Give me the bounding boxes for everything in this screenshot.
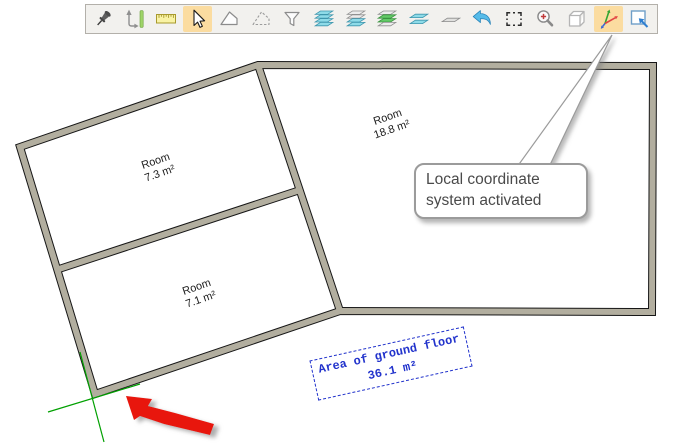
undo-icon <box>470 7 494 31</box>
callout-bubble: Local coordinate system activated <box>414 163 588 219</box>
toolbar-button-layers-stack[interactable] <box>309 6 338 32</box>
select-area-icon <box>502 7 526 31</box>
local-coordinate-system-icon <box>597 7 621 31</box>
toolbar-button-zoom-in[interactable] <box>531 6 560 32</box>
main-toolbar <box>85 4 658 34</box>
callout-tail <box>517 35 612 167</box>
measure-edge-icon <box>122 7 146 31</box>
toolbar-button-ruler[interactable] <box>151 6 180 32</box>
toolbar-button-layer-single[interactable] <box>436 6 465 32</box>
app-window: Room 7.3 m² Room 18.8 m² Room 7.1 m² Are… <box>0 0 678 444</box>
layers-upper-icon <box>344 7 368 31</box>
new-view-icon <box>628 7 652 31</box>
toolbar-button-select-cursor[interactable] <box>183 6 212 32</box>
polygon-icon <box>217 7 241 31</box>
toolbar-button-undo[interactable] <box>468 6 497 32</box>
toolbar-button-measure-edge[interactable] <box>120 6 149 32</box>
toolbar-button-polygon-auxiliary[interactable] <box>246 6 275 32</box>
toolbar-button-layers-thin-pair[interactable] <box>404 6 433 32</box>
toolbar-button-new-view[interactable] <box>626 6 655 32</box>
filter-icon <box>280 7 304 31</box>
zoom-in-icon <box>533 7 557 31</box>
pin-icon <box>91 7 115 31</box>
ruler-icon <box>154 7 178 31</box>
layer-single-icon <box>439 7 463 31</box>
layers-green-icon <box>375 7 399 31</box>
layers-stack-icon <box>312 7 336 31</box>
toolbar-button-filter[interactable] <box>278 6 307 32</box>
toolbar-button-select-area[interactable] <box>499 6 528 32</box>
toolbar-button-pin[interactable] <box>88 6 117 32</box>
toolbar-button-polygon[interactable] <box>215 6 244 32</box>
solid-box-icon <box>565 7 589 31</box>
toolbar-button-local-coordinate-system[interactable] <box>594 6 623 32</box>
polygon-dashed-icon <box>249 7 273 31</box>
red-pointer-arrow-icon <box>126 396 214 435</box>
select-cursor-icon <box>185 7 209 31</box>
toolbar-button-solid-box[interactable] <box>563 6 592 32</box>
layers-thin-pair-icon <box>407 7 431 31</box>
toolbar-button-layers-current-green[interactable] <box>373 6 402 32</box>
toolbar-button-layers-upper[interactable] <box>341 6 370 32</box>
